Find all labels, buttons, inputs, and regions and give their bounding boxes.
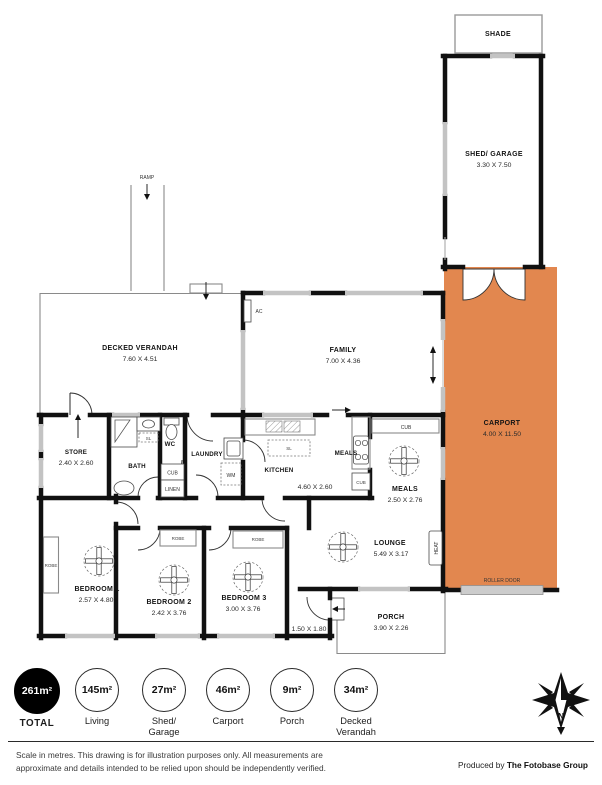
- family-dims: 7.00 X 4.36: [326, 358, 361, 365]
- summary-value: 34m²: [344, 684, 369, 696]
- summary-circle: 46m²: [206, 668, 250, 712]
- bath-fixtures: SL: [111, 417, 160, 495]
- summary-circle: 145m²: [75, 668, 119, 712]
- family-label: FAMILY: [330, 347, 357, 354]
- wc-fixtures: [164, 418, 179, 440]
- summary-item-decked-verandah: 34m² DeckedVerandah: [318, 668, 394, 738]
- north-label: N: [558, 712, 564, 721]
- summary-value: 46m²: [216, 684, 241, 696]
- brand-name: The Fotobase Group: [507, 760, 588, 770]
- bed3-dims: 3.00 X 3.76: [226, 606, 261, 613]
- summary-circle: 9m²: [270, 668, 314, 712]
- shed-label: SHED/ GARAGE: [465, 151, 523, 158]
- summary-circle: 261m²: [14, 668, 60, 714]
- store-dims: 2.40 X 2.60: [59, 460, 94, 467]
- verandah-dims: 7.60 X 4.51: [123, 356, 158, 363]
- carport-label: CARPORT: [484, 420, 521, 427]
- shed-dims: 3.30 X 7.50: [477, 162, 512, 169]
- floor-plan-drawing: SHADE: [0, 0, 602, 660]
- laundry-label: LAUNDRY: [191, 451, 223, 458]
- linen-label: LINEN: [165, 487, 180, 493]
- store-label: STORE: [65, 449, 87, 456]
- summary-label: DeckedVerandah: [318, 716, 394, 738]
- heat-label: HEAT: [434, 542, 440, 555]
- kitchen-label: KITCHEN: [265, 467, 294, 474]
- cub-meals-label: CUB: [401, 425, 412, 431]
- floor-plan-page: SHADE: [0, 0, 602, 785]
- porch-label: PORCH: [378, 614, 405, 621]
- summary-circle: 34m²: [334, 668, 378, 712]
- compass-rose-icon: N: [527, 667, 597, 737]
- bed2-dims: 2.42 X 3.76: [152, 610, 187, 617]
- summary-circle: 27m²: [142, 668, 186, 712]
- wc-label: WC: [165, 441, 176, 448]
- cub-hall-label: CUB: [167, 471, 178, 477]
- meals-label: MEALS: [392, 486, 418, 493]
- bed1-label: BEDROOM 1: [74, 586, 119, 593]
- verandah-label: DECKED VERANDAH: [102, 345, 178, 352]
- roller-door: [461, 586, 543, 595]
- wm-label: WM: [227, 473, 236, 479]
- kitchen-dims: 4.60 X 2.60: [298, 484, 333, 491]
- summary-value: 9m²: [283, 684, 302, 696]
- carport-dims: 4.00 X 11.50: [483, 431, 521, 438]
- produced-by: Produced by The Fotobase Group: [458, 760, 588, 770]
- footer-divider: [8, 741, 594, 742]
- lounge-dims: 5.49 X 3.17: [374, 551, 409, 558]
- carport-area: [444, 267, 557, 591]
- ramp-label: RAMP: [140, 175, 155, 181]
- summary-value: 27m²: [152, 684, 177, 696]
- robe-bed3-label: ROBE: [252, 537, 265, 542]
- summary-value: 261m²: [22, 685, 52, 697]
- bed1-dims: 2.57 X 4.80: [79, 597, 114, 604]
- ac-label: AC: [256, 309, 263, 315]
- laundry-fixtures: WM: [221, 438, 243, 485]
- meals-nook-label: MEALS: [335, 450, 358, 457]
- bath-label: BATH: [128, 463, 146, 470]
- summary-label: Living: [59, 716, 135, 727]
- entry-dims: 1.50 X 1.80: [292, 626, 327, 633]
- ac-unit: [244, 300, 251, 322]
- bed2-label: BEDROOM 2: [146, 599, 191, 606]
- summary-item-living: 145m² Living: [59, 668, 135, 727]
- robe-bed1-label: ROBE: [45, 563, 58, 568]
- porch-dims: 3.90 X 2.26: [374, 625, 409, 632]
- sl-label-bath: SL: [146, 436, 152, 441]
- meals-dims: 2.50 X 2.76: [388, 497, 423, 504]
- robe-bed2-label: ROBE: [172, 536, 185, 541]
- disclaimer-text: Scale in metres. This drawing is for ill…: [16, 749, 356, 774]
- cub-kitchen-label: CUB: [356, 480, 366, 485]
- lounge-label: LOUNGE: [374, 540, 406, 547]
- roller-door-label: ROLLER DOOR: [484, 578, 521, 584]
- summary-value: 145m²: [82, 684, 112, 696]
- shade-label: SHADE: [485, 31, 511, 38]
- bed3-label: BEDROOM 3: [221, 595, 266, 602]
- sl-label-kitchen: SL: [286, 446, 292, 451]
